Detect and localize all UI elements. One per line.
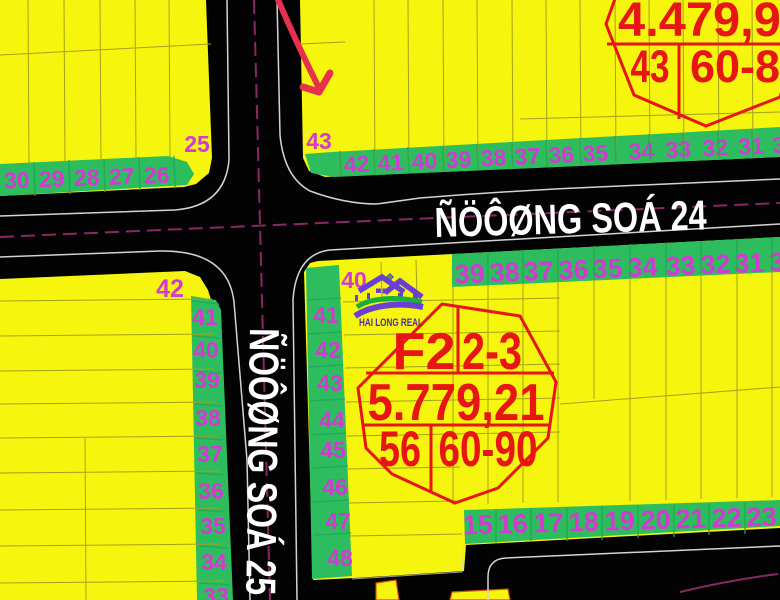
svg-text:F2: F2 bbox=[393, 323, 456, 381]
svg-text:39: 39 bbox=[454, 258, 485, 289]
svg-text:39: 39 bbox=[445, 146, 472, 173]
svg-text:38: 38 bbox=[489, 257, 520, 288]
svg-text:36: 36 bbox=[558, 254, 589, 285]
svg-text:42: 42 bbox=[156, 275, 184, 303]
svg-text:37: 37 bbox=[197, 441, 223, 467]
svg-text:34: 34 bbox=[628, 138, 655, 165]
svg-text:25: 25 bbox=[184, 131, 210, 157]
svg-text:36: 36 bbox=[548, 141, 575, 168]
svg-text:37: 37 bbox=[514, 143, 541, 170]
svg-text:26: 26 bbox=[143, 162, 169, 189]
svg-text:35: 35 bbox=[200, 513, 226, 539]
svg-text:33: 33 bbox=[665, 250, 696, 281]
svg-text:36: 36 bbox=[198, 478, 224, 504]
svg-text:2-3: 2-3 bbox=[462, 323, 522, 381]
svg-text:56: 56 bbox=[379, 421, 421, 477]
svg-text:17: 17 bbox=[533, 508, 564, 539]
svg-text:18: 18 bbox=[568, 507, 599, 538]
svg-text:34: 34 bbox=[627, 252, 658, 283]
svg-text:48: 48 bbox=[327, 545, 353, 571]
svg-text:19: 19 bbox=[604, 506, 635, 537]
svg-text:60-90: 60-90 bbox=[439, 421, 538, 477]
svg-text:31: 31 bbox=[738, 133, 765, 160]
svg-text:HAI LONG REAL: HAI LONG REAL bbox=[359, 317, 423, 329]
svg-text:ÑÖÔØNG SOÁ 24: ÑÖÔØNG SOÁ 24 bbox=[434, 190, 708, 246]
svg-text:34: 34 bbox=[201, 549, 227, 575]
svg-text:38: 38 bbox=[480, 144, 507, 171]
svg-text:46: 46 bbox=[322, 474, 348, 500]
svg-text:21: 21 bbox=[675, 504, 706, 535]
svg-text:42: 42 bbox=[315, 337, 341, 363]
svg-text:33: 33 bbox=[665, 136, 692, 163]
svg-text:60-80: 60-80 bbox=[690, 41, 780, 92]
svg-text:40: 40 bbox=[193, 337, 219, 363]
svg-text:27: 27 bbox=[108, 163, 134, 190]
svg-text:41: 41 bbox=[313, 302, 339, 328]
svg-text:35: 35 bbox=[592, 253, 623, 284]
svg-text:ÑÖÔØNG SOÁ 25: ÑÖÔØNG SOÁ 25 bbox=[237, 328, 289, 596]
svg-text:22: 22 bbox=[711, 503, 742, 534]
svg-text:45: 45 bbox=[320, 437, 346, 463]
svg-text:37: 37 bbox=[523, 256, 554, 287]
svg-text:42: 42 bbox=[343, 150, 370, 177]
svg-text:15: 15 bbox=[462, 510, 493, 541]
svg-text:30: 30 bbox=[772, 131, 780, 158]
svg-text:32: 32 bbox=[700, 249, 731, 280]
svg-text:40: 40 bbox=[411, 147, 438, 174]
svg-text:43: 43 bbox=[317, 370, 343, 396]
svg-text:33: 33 bbox=[203, 583, 229, 600]
svg-text:30: 30 bbox=[769, 246, 780, 277]
svg-text:32: 32 bbox=[702, 134, 729, 161]
svg-text:31: 31 bbox=[734, 248, 765, 279]
svg-text:23: 23 bbox=[746, 502, 777, 533]
svg-text:20: 20 bbox=[640, 505, 671, 536]
svg-text:38: 38 bbox=[195, 405, 221, 431]
svg-text:28: 28 bbox=[73, 164, 100, 191]
svg-text:43: 43 bbox=[306, 128, 332, 154]
svg-text:16: 16 bbox=[497, 509, 528, 540]
svg-text:47: 47 bbox=[325, 508, 351, 534]
svg-text:41: 41 bbox=[192, 304, 218, 330]
svg-text:44: 44 bbox=[319, 407, 345, 433]
svg-text:4.479,96: 4.479,96 bbox=[618, 0, 780, 47]
svg-text:43: 43 bbox=[631, 41, 670, 92]
svg-text:29: 29 bbox=[38, 165, 64, 192]
svg-text:35: 35 bbox=[582, 140, 609, 167]
svg-text:41: 41 bbox=[377, 149, 404, 176]
svg-text:30: 30 bbox=[3, 167, 29, 194]
